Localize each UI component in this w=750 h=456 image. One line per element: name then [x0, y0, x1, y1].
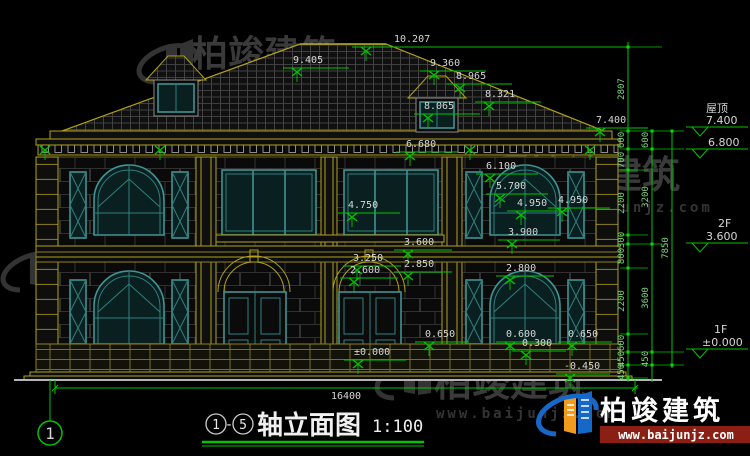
level-value: 3.600 [706, 230, 738, 243]
cad-elevation-drawing: 柏竣建筑 www.baijunjz.com 柏竣建筑 www.baijunjz.… [0, 0, 750, 456]
chain-value: 300 [617, 232, 627, 248]
level-name: 2F [718, 217, 731, 230]
level-name: 1F [714, 323, 727, 336]
window-2f-center-left [222, 170, 316, 235]
logo-building-orange-icon [564, 398, 576, 434]
chain-value: 7850 [661, 237, 671, 259]
dim-label: 8.965 [456, 71, 486, 82]
title-scale: 1:100 [372, 417, 423, 437]
dim-label: 2.600 [350, 265, 380, 276]
dim-label: 3.250 [353, 253, 383, 264]
dim-label: 2.800 [506, 263, 536, 274]
crown-molding [36, 139, 620, 145]
main-hip-roof [62, 44, 604, 131]
level-value: ±0.000 [702, 336, 743, 349]
dim-label: 5.700 [496, 181, 526, 192]
dentil-band [38, 145, 618, 155]
level-flags: 屋顶 7.400 6.800 2F 3.600 1F ±0.000 [686, 102, 748, 358]
brand-url: www.baijunjz.com [618, 428, 734, 442]
brand-name: 柏竣建筑 [600, 395, 724, 427]
chain-value: 3600 [641, 287, 651, 309]
dim-label: 0.650 [425, 329, 455, 340]
roof [50, 44, 612, 139]
dim-label: 4.950 [517, 198, 547, 209]
chain-value: 600 [617, 335, 627, 351]
chain-value: 2200 [617, 290, 627, 312]
dim-label: 4.950 [558, 195, 588, 206]
title-axis-end: 5 [239, 418, 247, 433]
dim-label: 6.680 [406, 139, 436, 150]
chain-value: 3200 [641, 186, 651, 208]
level-value: 6.800 [708, 136, 740, 149]
step [30, 372, 626, 376]
chain-value: 600 [617, 132, 627, 148]
dim-label: 9.360 [430, 58, 460, 69]
drawing-canvas: 柏竣建筑 www.baijunjz.com 柏竣建筑 www.baijunjz.… [0, 0, 750, 456]
level-value: 7.400 [706, 114, 738, 127]
cornice [36, 139, 620, 155]
floor-band [36, 246, 620, 262]
chain-value: 600 [641, 132, 651, 148]
dim-label: 2.850 [404, 259, 434, 270]
total-width-label: 16400 [331, 391, 361, 402]
dim-label: 6.100 [486, 161, 516, 172]
dim-label: -0.450 [564, 361, 600, 372]
chain-value: 2807 [617, 78, 627, 100]
axis-bubble-1: 1 [38, 380, 62, 445]
dim-label: 7.400 [596, 115, 626, 126]
dim-label: 8.321 [485, 89, 515, 100]
dim-label: 0.300 [522, 338, 552, 349]
title-text: 轴立面图 [257, 410, 361, 441]
drawing-title: 1 - 5 轴立面图 1:100 [202, 410, 424, 446]
title-dash: - [225, 417, 233, 433]
title-axis-start: 1 [212, 418, 220, 433]
dim-label: 3.600 [404, 237, 434, 248]
chain-value: 800 [617, 248, 627, 264]
dim-label: 8.065 [424, 101, 454, 112]
dim-label: 9.405 [293, 55, 323, 66]
dim-label: ±0.000 [354, 347, 390, 358]
chain-value: 2200 [617, 192, 627, 214]
dim-label: 4.750 [348, 200, 378, 211]
brand-logo: 柏竣建筑 www.baijunjz.com [539, 391, 750, 443]
dim-label: 0.650 [568, 329, 598, 340]
eave-fascia [50, 131, 612, 139]
axis-number: 1 [45, 424, 55, 443]
chain-value: 450 [617, 364, 627, 380]
dim-label: 3.900 [508, 227, 538, 238]
chain-value: 450 [641, 351, 651, 367]
dim-label: 10.207 [394, 34, 430, 45]
chain-value: 700 [617, 152, 627, 168]
